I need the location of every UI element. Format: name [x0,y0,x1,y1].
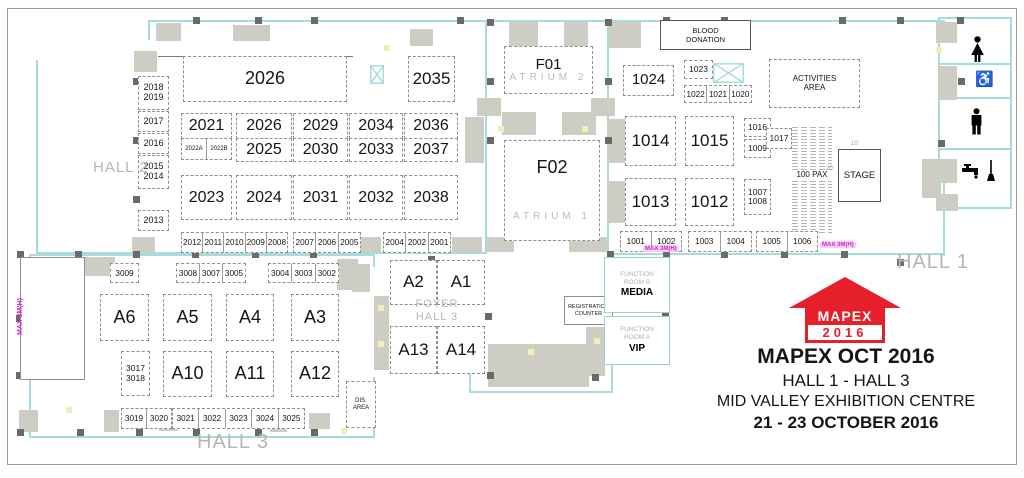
booth-cell-2001: 2001 [428,233,450,252]
pillar-column [605,19,612,26]
booth-2033: 2033 [349,138,403,162]
structure-block [134,51,157,72]
ceiling-light [936,47,942,53]
wall-segment [150,20,945,22]
wall-segment [469,391,613,393]
booth-cell-3020: 3020 [146,409,171,428]
booth-2018-2019: 20182019 [138,76,169,110]
booth-cell-2022A: 2022A [182,139,206,159]
hall1-label: HALL 1 [897,251,969,274]
label-line: A10 [171,364,203,383]
booth-cell-3021: 3021 [173,409,198,428]
booth-cell-3022: 3022 [198,409,224,428]
label-line: A11 [235,364,266,383]
room-side-room [20,257,85,380]
stage-width-dim: 10' [851,141,859,147]
label-line: 2029 [303,117,339,134]
structure-block [509,22,538,48]
hall3-label: HALL 3 [197,431,269,454]
label-line: F01 [536,57,562,73]
pillar-column [958,78,965,85]
foyer-label-line2: HALL 3 [406,311,468,323]
label-line: 2032 [358,189,394,206]
label-line: 2021 [189,117,225,134]
label-line: A13 [398,341,428,359]
booth-cell-3009: 3009 [111,264,138,282]
pillar-column [77,429,84,436]
logo-body: MAPEX 2016 [805,307,885,343]
booth-strip-3019-3020: 30193020 [121,408,172,429]
event-dates: 21 - 23 OCTOBER 2016 [700,412,992,433]
booth-strip-1022-1020: 102210211020 [684,85,752,103]
label-line: 2038 [413,189,449,206]
label-line: A2 [403,273,424,291]
ceiling-light [384,45,390,51]
booth-cell-3003: 3003 [291,264,314,282]
booth-A10: A10 [163,351,212,397]
label-line: A14 [446,341,476,359]
booth-2030: 2030 [293,138,348,162]
label-line: FUNCTION [620,271,654,279]
booth-cell-3025: 3025 [278,409,304,428]
pillar-column [457,17,464,24]
label-line: 2026 [245,69,285,88]
booth-2026: 2026 [183,56,347,102]
label-line: 2037 [413,141,449,158]
ceiling-light [378,305,384,311]
booth-cell-2007: 2007 [294,233,315,252]
booth-F02-atrium1: F02ATRIUM 1 [504,140,600,241]
stage-depth-dim: 20' [826,166,834,172]
booth-2037: 2037 [404,138,458,162]
booth-2034: 2034 [349,113,403,139]
booth-cell-3024: 3024 [251,409,277,428]
booth-dis-area: DIS.AREA [346,381,376,428]
booth-cell-2022B: 2022B [206,139,231,159]
max-height-label-vertical: MAX 3M(H) [17,283,24,335]
booth-3017-3018: 30173018 [121,351,150,396]
label-line: 1009 [748,144,767,153]
booth-strip-2004-2001: 200420022001 [383,232,451,253]
booth-cell-3007: 3007 [199,264,222,282]
label-line: A1 [451,273,472,291]
pillar-column [841,251,848,258]
booth-cell-3002: 3002 [315,264,338,282]
structure-block [502,112,536,135]
structure-block [156,23,181,41]
label-line: A3 [304,308,326,327]
booth-cell-2008: 2008 [266,233,287,252]
booth-cell-3008: 3008 [177,264,199,282]
booth-strip-2007-2005: 200720062005 [293,232,361,253]
label-line: F02 [536,158,567,177]
booth-cell-2006: 2006 [315,233,337,252]
label-line: AREA [353,405,369,411]
booth-strip-3021-3025: 30213022302330243025 [172,408,305,429]
event-title: MAPEX OCT 2016 [700,344,992,370]
structure-block [936,22,957,43]
pillar-column [487,372,494,379]
wall-segment [607,253,945,255]
mapex-logo: MAPEX 2016 [788,277,902,343]
pillar-column [839,17,846,24]
room-blood-donation: BLOODDONATION [660,20,751,50]
booth-A14: A14 [437,326,485,374]
booth-activities-area: ACTIVITIESAREA [769,59,860,108]
pillar-column [193,17,200,24]
booth-cell-1006: 1006 [787,232,818,251]
pillar-column [721,251,728,258]
booth-F01-atrium2: F01ATRIUM 2 [504,46,593,94]
booth-strip-2012-2008: 20122011201020092008 [181,232,288,253]
booth-cell-3023: 3023 [225,409,251,428]
label-line: 1023 [689,65,708,74]
booth-2029: 2029 [293,113,348,139]
structure-block [940,159,957,183]
wall-segment [36,60,38,254]
room-stage: STAGE [838,149,881,202]
label-line: ATRIUM 2 [510,73,588,84]
structure-block [607,181,625,223]
label-line: BLOOD [692,26,718,35]
label-line: VIP [629,342,645,355]
booth-2036: 2036 [404,113,458,139]
pillar-column [957,17,964,24]
booth-cell-2012: 2012 [182,233,202,252]
structure-block [936,194,958,211]
label-line: MEDIA [621,286,653,299]
foyer-label-line1: FOYER [406,298,468,310]
label-line: 2034 [358,117,394,134]
structure-block [452,237,482,252]
structure-block [309,413,330,429]
booth-A13: A13 [390,326,437,374]
label-line: 2017 [143,117,163,127]
booth-2024: 2024 [236,175,292,220]
booth-cell-2009: 2009 [245,233,266,252]
pillar-column [897,17,904,24]
pillar-column [133,196,140,203]
label-line: 2019 [143,93,163,103]
booth-strip-1003-1004: 10031004 [688,231,752,252]
structure-block [477,98,501,116]
booth-cell-1020: 1020 [729,86,751,102]
label-line: ROOM A [624,334,650,342]
ceiling-light [498,126,504,132]
booth-A12: A12 [291,351,339,397]
booth-1023: 1023 [684,60,713,79]
booth-2017: 2017 [138,111,169,132]
logo-roof-shape [789,277,901,308]
booth-cell-2011: 2011 [202,233,223,252]
ceiling-light [528,349,534,355]
booth-2013: 2013 [138,210,169,231]
label-line: 2031 [303,189,339,206]
booth-1024: 1024 [623,65,674,96]
booth-cell-1021: 1021 [706,86,728,102]
label-line: 2035 [413,70,451,88]
booth-1017: 1017 [766,128,792,149]
label-line: ROOM B [624,279,650,287]
ceiling-light [582,126,588,132]
ceiling-light [66,407,72,413]
booth-cell-2010: 2010 [223,233,244,252]
label-line: 1016 [748,123,767,132]
pillar-column [592,374,599,381]
pillar-column [938,140,945,147]
label-line: 2026 [246,117,282,134]
booth-2025: 2025 [236,138,292,162]
structure-block [465,117,484,163]
pillar-column [781,251,788,258]
label-line: 1017 [770,134,789,143]
booth-2035: 2035 [408,56,455,102]
booth-cell-3005: 3005 [222,264,245,282]
label-line: A5 [176,308,198,327]
label-line: A12 [299,364,331,383]
event-info: MAPEX OCT 2016 HALL 1 - HALL 3 MID VALLE… [700,344,992,433]
booth-1015: 1015 [685,116,734,166]
structure-block [938,66,957,100]
booth-1013: 1013 [625,178,676,226]
pillar-column [605,137,612,144]
pillar-column [311,429,318,436]
booth-2016: 2016 [138,133,169,154]
booth-2038: 2038 [404,175,458,220]
crossed-service-box [713,63,744,83]
label-line: 2030 [303,141,339,158]
booth-strip-3004-3002: 300430033002 [268,263,339,283]
label-line: 1024 [632,72,665,88]
structure-block [609,22,641,48]
pillar-column [133,251,140,258]
label-line: 2036 [413,117,449,134]
booth-A6: A6 [100,294,149,341]
label-line: 1015 [691,132,729,150]
booth-A4: A4 [226,294,274,341]
pillar-column [17,429,24,436]
structure-block [488,344,589,387]
logo-year: 2016 [808,325,882,340]
ceiling-light [341,428,347,434]
event-venue: MID VALLEY EXHIBITION CENTRE [700,392,992,412]
booth-A11: A11 [226,351,274,397]
label-line: FUNCTION [620,326,654,334]
label-line: 3018 [126,374,145,383]
booth-strip-3009: 3009 [110,263,139,283]
booth-cell-1003: 1003 [689,232,720,251]
wall-segment [148,20,150,40]
label-line: A4 [239,308,261,327]
booth-cell-2005: 2005 [338,233,360,252]
booth-2031: 2031 [293,175,348,220]
ceiling-light [594,338,600,344]
pillar-column [485,313,492,320]
pillar-column [605,78,612,85]
booth-strip-2022A-2022B: 2022A2022B [181,138,232,160]
structure-block [564,22,588,48]
pillar-column [255,17,262,24]
label-line: DONATION [686,35,725,44]
booth-cell-1004: 1004 [720,232,752,251]
label-line: 2033 [358,141,394,158]
structure-block [132,237,155,252]
pillar-column [487,137,494,144]
booth-2023: 2023 [181,175,232,220]
label-line: 2016 [143,139,163,149]
crossed-service-box [370,65,384,84]
label-line: ATRIUM 1 [513,212,591,223]
structure-block [352,264,370,292]
booth-cell-3019: 3019 [122,409,146,428]
structure-block [591,98,615,116]
pillar-column [487,78,494,85]
label-line: COUNTER [575,311,602,318]
booth-strip-1005-1006: 10051006 [756,231,818,252]
label-line: 2024 [246,189,282,206]
booth-cell-3004: 3004 [269,264,291,282]
label-line: REGISTRATION [568,304,609,311]
booth-2032: 2032 [349,175,403,220]
booth-2026B: 2026 [236,113,292,139]
label-line: 2023 [189,189,225,206]
max-height-label-2: MAX 3M(H) [820,242,856,248]
booth-strip-3008-3005: 300830073005 [176,263,246,283]
label-line: AREA [804,84,826,93]
label-line: 1012 [691,193,729,211]
structure-block [586,327,605,376]
structure-block [104,410,119,432]
booth-1007-1008: 10071008 [744,179,771,215]
booth-1012: 1012 [685,178,734,226]
max-height-label-1: MAX 3M(H) [643,246,679,252]
logo-name: MAPEX [808,308,882,324]
structure-block [922,159,941,198]
label-line: A6 [113,308,135,327]
label-line: 1008 [748,197,767,206]
booth-1014: 1014 [625,116,676,166]
room-function-room-b-media: FUNCTIONROOM BMEDIA [604,257,670,313]
hall2-label: HALL 2 [93,159,148,176]
structure-block [361,237,381,252]
booth-A3: A3 [291,294,339,341]
label-line: 1014 [632,132,670,150]
ceiling-light [378,341,384,347]
floor-plan: 100 PAX ♿ MAPEX 2016 MAPEX OCT 2016 HALL… [0,0,1024,478]
pillar-column [487,19,494,26]
booth-cell-2004: 2004 [384,233,405,252]
booth-cell-2002: 2002 [405,233,427,252]
booth-A5: A5 [163,294,212,341]
booth-2021: 2021 [181,113,232,139]
pillar-column [136,429,143,436]
booth-cell-1022: 1022 [685,86,706,102]
label-line: STAGE [844,170,876,181]
room-function-room-a-vip: FUNCTIONROOM AVIP [604,316,670,365]
label-line: 2025 [246,141,282,158]
structure-block [233,25,270,41]
event-halls: HALL 1 - HALL 3 [700,370,992,391]
pillar-column [311,17,318,24]
structure-block [410,29,433,46]
label-line: 1013 [632,193,670,211]
seating-rows [792,127,832,235]
label-line: 2013 [143,216,163,226]
booth-cell-1005: 1005 [757,232,787,251]
